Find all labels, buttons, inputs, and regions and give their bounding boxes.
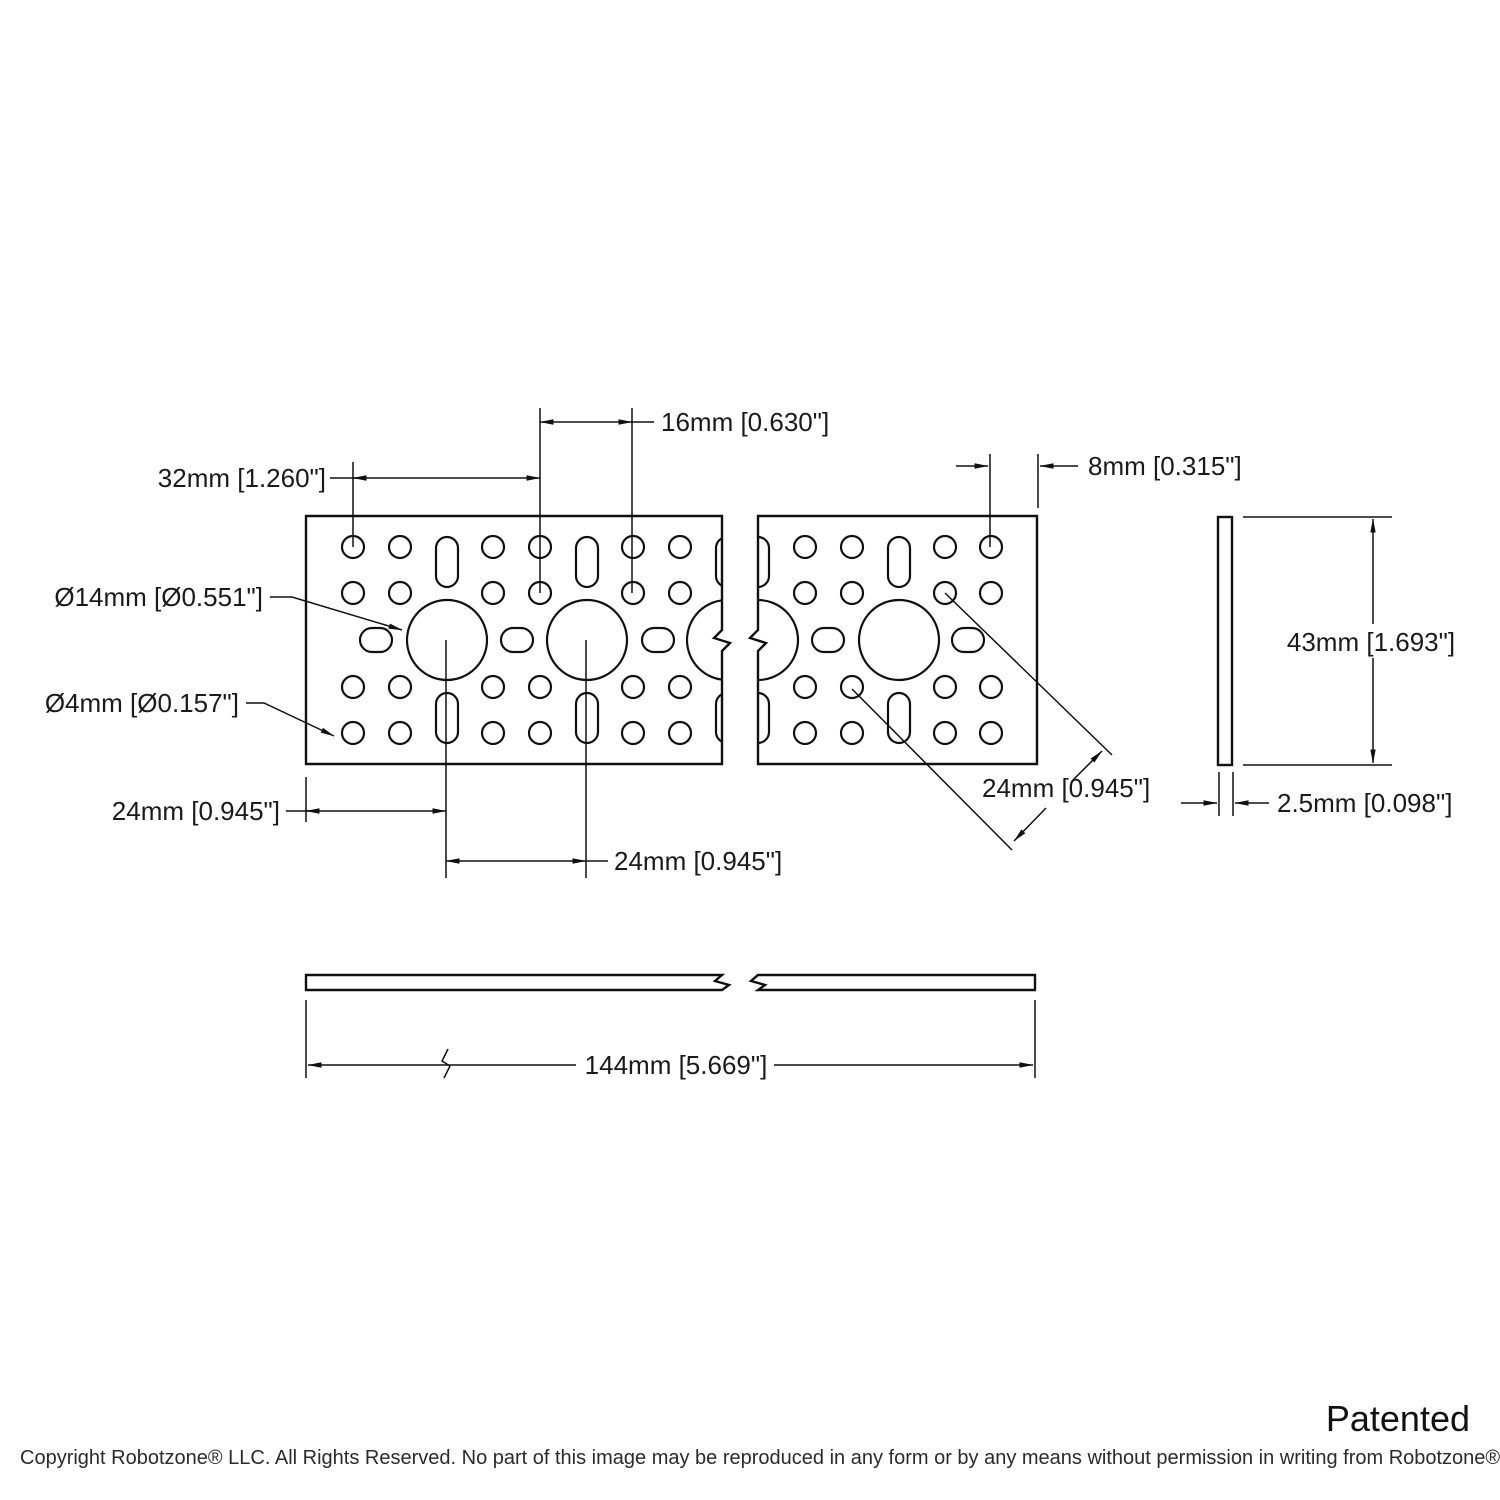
break-mark <box>442 1049 450 1078</box>
dimension-drawing: 16mm [0.630"] 32mm [1.260"] 8mm [0.315"]… <box>0 0 1500 1500</box>
dim-24mm-center: 24mm [0.945"] <box>446 846 782 876</box>
bottom-edge-view <box>306 975 1035 990</box>
dimension-annotations: 16mm [0.630"] 32mm [1.260"] 8mm [0.315"]… <box>45 407 1455 1080</box>
edge-view-right-strip <box>751 975 1035 990</box>
copyright-notice: Copyright Robotzone® LLC. All Rights Res… <box>20 1447 1500 1469</box>
dim-43mm: 43mm [1.693"] <box>1243 517 1455 765</box>
dim-32mm-label: 32mm [1.260"] <box>158 463 326 493</box>
side-view-outline <box>1218 517 1232 765</box>
dim-24mm-left: 24mm [0.945"] <box>112 777 446 826</box>
dim-dia4mm: Ø4mm [Ø0.157"] <box>45 688 334 736</box>
dim-dia4mm-label: Ø4mm [Ø0.157"] <box>45 688 239 718</box>
dim-24mm-center-label: 24mm [0.945"] <box>614 846 782 876</box>
dim-dia14mm-label: Ø14mm [Ø0.551"] <box>54 582 263 612</box>
dim-2-5mm-label: 2.5mm [0.098"] <box>1277 788 1452 818</box>
left-plate-outline <box>306 516 730 764</box>
dim-24mm-diagonal-label: 24mm [0.945"] <box>982 773 1150 803</box>
dim-144mm: 144mm [5.669"] <box>306 1000 1035 1080</box>
dim-144mm-label: 144mm [5.669"] <box>585 1050 768 1080</box>
dim-2-5mm: 2.5mm [0.098"] <box>1181 772 1452 818</box>
dim-16mm-label: 16mm [0.630"] <box>661 407 829 437</box>
front-view-right-section <box>718 516 1037 764</box>
front-view-left-section <box>306 516 767 764</box>
patent-note: Patented <box>1326 1398 1470 1439</box>
side-view <box>1218 517 1232 765</box>
dim-43mm-label: 43mm [1.693"] <box>1287 627 1455 657</box>
drawing-canvas: 16mm [0.630"] 32mm [1.260"] 8mm [0.315"]… <box>0 0 1500 1500</box>
dim-8mm-label: 8mm [0.315"] <box>1088 451 1242 481</box>
edge-view-left-strip <box>306 975 729 990</box>
dim-24mm-left-label: 24mm [0.945"] <box>112 796 280 826</box>
